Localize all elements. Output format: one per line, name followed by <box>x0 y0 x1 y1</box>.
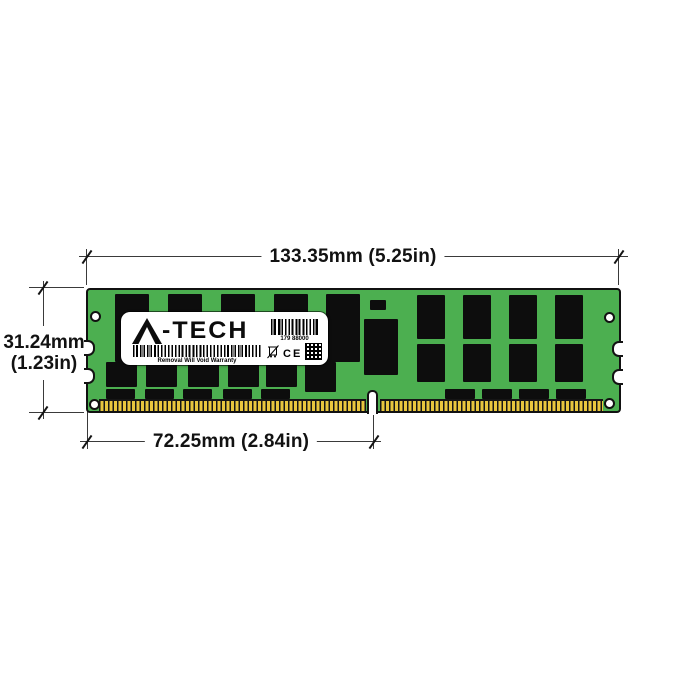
triangle-a-icon <box>132 318 162 344</box>
memory-chip <box>519 389 549 399</box>
extension-line <box>29 412 84 413</box>
latch-notch <box>612 369 623 385</box>
height-in: (1.23in) <box>3 353 84 374</box>
memory-chip <box>188 362 219 387</box>
memory-chip <box>223 389 252 399</box>
memory-chip <box>146 362 177 387</box>
barcode-large <box>133 345 261 357</box>
memory-chip <box>417 295 445 339</box>
memory-chip <box>482 389 512 399</box>
barcode-number: 179 88000 <box>271 336 318 342</box>
width-dimension-label: 133.35mm (5.25in) <box>261 245 444 269</box>
memory-chip <box>326 294 360 362</box>
latch-notch <box>84 340 95 356</box>
memory-chip <box>463 344 491 382</box>
product-dimension-diagram: 133.35mm (5.25in) 31.24mm (1.23in) 72.25… <box>0 0 700 700</box>
memory-chip <box>106 362 137 387</box>
height-dimension-label: 31.24mm (1.23in) <box>0 326 87 380</box>
gold-pins-left <box>99 399 366 411</box>
memory-chip <box>445 389 475 399</box>
memory-chip <box>261 389 290 399</box>
extension-line <box>29 287 84 288</box>
brand-logo: -TECH <box>132 317 248 344</box>
height-mm: 31.24mm <box>3 332 84 353</box>
ce-mark: CE <box>283 348 302 360</box>
memory-chip <box>556 389 586 399</box>
mounting-hole <box>604 312 615 323</box>
mounting-hole <box>604 398 615 409</box>
memory-chip <box>145 389 174 399</box>
memory-chip <box>106 389 135 399</box>
product-sticker: -TECH 179 88000 Removal Will Void Warran… <box>121 312 328 365</box>
memory-chip <box>509 295 537 339</box>
latch-notch <box>84 368 95 384</box>
qr-code-icon <box>305 343 322 360</box>
memory-chip <box>364 319 398 375</box>
mounting-hole <box>89 399 100 410</box>
gold-pins-right <box>380 399 603 411</box>
memory-chip <box>228 362 259 387</box>
memory-chip <box>183 389 212 399</box>
memory-module: -TECH 179 88000 Removal Will Void Warran… <box>86 288 621 413</box>
barcode-small <box>271 319 318 335</box>
memory-chip <box>463 295 491 339</box>
memory-chip <box>266 362 297 387</box>
memory-chip <box>305 362 336 392</box>
memory-chip <box>555 295 583 339</box>
warranty-text: Removal Will Void Warranty <box>133 358 261 364</box>
key-notch <box>367 390 378 414</box>
brand-text: -TECH <box>162 318 248 343</box>
pin-span-dimension-label: 72.25mm (2.84in) <box>145 430 317 454</box>
latch-notch <box>612 341 623 357</box>
memory-chip <box>417 344 445 382</box>
memory-chip <box>370 300 386 310</box>
memory-chip <box>509 344 537 382</box>
memory-chip <box>555 344 583 382</box>
mounting-hole <box>90 311 101 322</box>
weee-bin-icon <box>267 345 279 359</box>
